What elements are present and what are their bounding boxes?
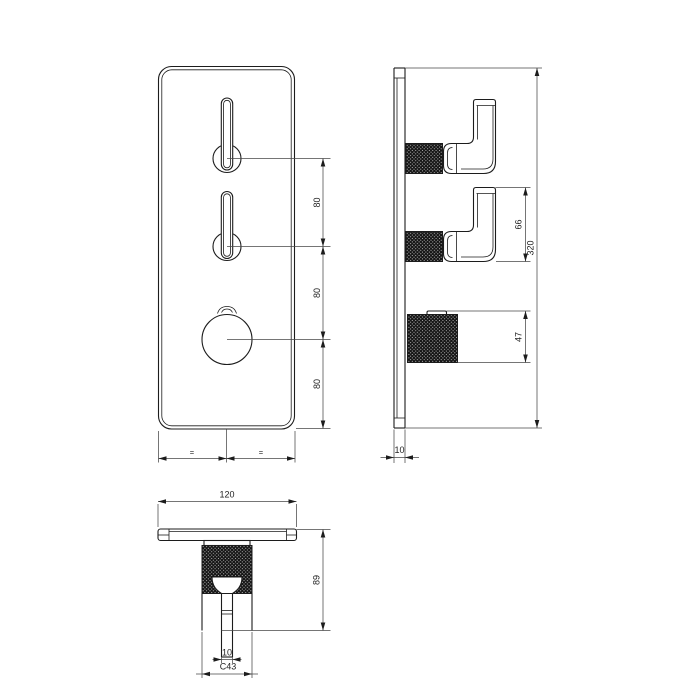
dim-label-120: 120 [219, 490, 234, 500]
side-dim-47: 47 [447, 311, 531, 363]
dim-label-47: 47 [514, 332, 524, 342]
side-view: 320 66 47 10 [381, 68, 543, 463]
side-knob [408, 311, 458, 363]
dim-label-89: 89 [312, 575, 322, 585]
technical-drawing-page: 80 80 80 = = [0, 0, 700, 700]
front-dim-equal: = = [159, 429, 296, 463]
front-dim-chain-80: 80 80 80 [227, 159, 331, 429]
technical-drawing-canvas: 80 80 80 = = [0, 0, 700, 700]
dim-label-80-mid: 80 [312, 288, 322, 298]
side-dim-66: 66 [496, 188, 531, 262]
dim-label-80-bottom: 80 [312, 379, 322, 389]
dim-label-66: 66 [514, 219, 524, 229]
knob-neck [204, 541, 250, 546]
dim-label-equal-right: = [259, 448, 264, 457]
front-handle-middle [213, 192, 241, 261]
bottom-plate [158, 529, 297, 541]
bottom-knob-assembly [202, 541, 252, 658]
bottom-view: 120 89 [158, 490, 331, 679]
knob-indicator-tab [218, 307, 237, 314]
dim-label-80-top: 80 [312, 197, 322, 207]
side-dim-10: 10 [381, 430, 420, 464]
dim-label-320: 320 [526, 240, 536, 255]
bottom-dim-120: 120 [158, 490, 297, 528]
side-handle-top [406, 100, 496, 174]
front-handle-top [213, 98, 241, 173]
side-plate [394, 68, 405, 428]
front-knob [202, 307, 252, 365]
front-view: 80 80 80 = = [159, 67, 331, 463]
dim-label-diameter-43: C43 [220, 662, 237, 672]
dim-label-equal-left: = [190, 448, 195, 457]
side-handle-middle [406, 188, 496, 262]
dim-label-10-side: 10 [394, 445, 404, 455]
dim-label-10-bottom: 10 [222, 648, 232, 658]
